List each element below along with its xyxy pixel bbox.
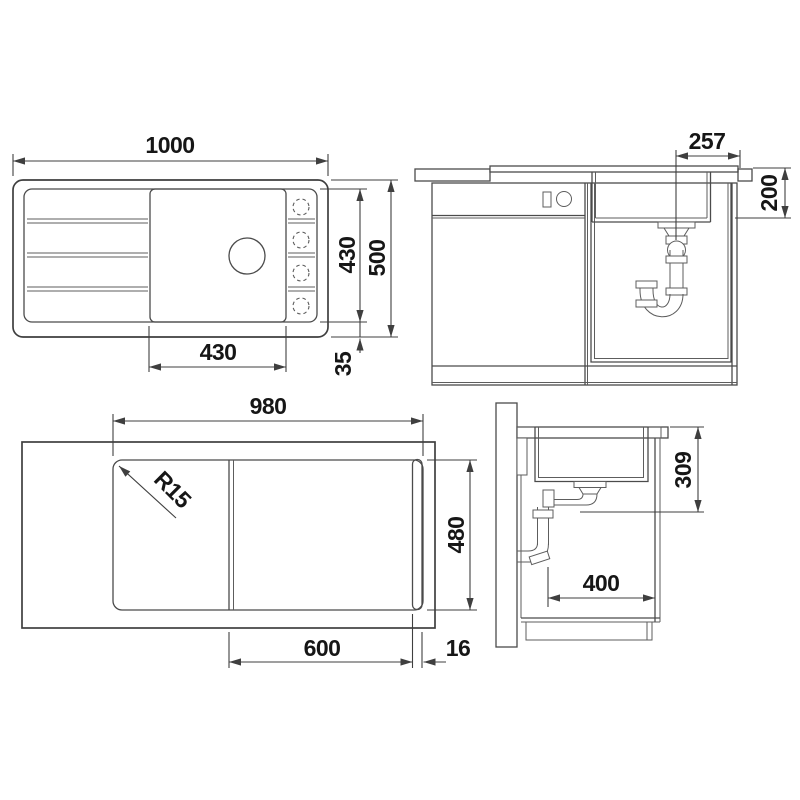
dim-bowl-depth: 200	[735, 168, 791, 218]
dim-label-overall-width: 1000	[145, 132, 194, 158]
dim-strip-width: 16	[424, 635, 471, 662]
bowl-section-front	[592, 172, 711, 222]
sink-outline	[13, 180, 328, 337]
dim-label-drain-to-right-edge: 257	[689, 128, 726, 154]
waste-trap-front	[636, 222, 695, 317]
dim-label-clearance-width: 400	[583, 570, 620, 596]
countertop-side	[517, 427, 668, 438]
wall-hatch	[496, 403, 517, 647]
dim-label-cutout-width: 980	[250, 393, 287, 419]
appliance-knob-circle	[557, 192, 572, 207]
countertop-right-hatch	[738, 169, 752, 181]
plinth	[526, 622, 652, 640]
appliance-button-rect	[543, 192, 551, 207]
dim-label-strip-width: 16	[446, 635, 471, 661]
dim-label-cutout-height: 480	[443, 517, 469, 554]
dim-label-bowl-section-width: 600	[304, 635, 341, 661]
dim-label-overall-height: 500	[364, 240, 390, 277]
countertop-left-hatch	[415, 169, 490, 181]
dim-clearance-width: 400	[548, 567, 655, 607]
front-section-view: 257 200	[415, 128, 791, 385]
cutout-plan-view: R15 980 480 600 16	[22, 393, 477, 668]
sink-dimension-drawing: 1000 430 500 430 35	[0, 0, 800, 800]
dim-label-bowl-depth: 200	[756, 175, 782, 212]
sink-cabinet-inner-wall-inner	[595, 183, 729, 359]
sink-rim-profile	[490, 166, 738, 172]
dim-label-edge-margin: 35	[330, 351, 356, 376]
cabinet-side	[521, 438, 660, 640]
plan-view: 1000 430 500 430 35	[13, 132, 398, 376]
side-section-view: 309 400	[496, 403, 704, 647]
dim-label-installation-depth: 309	[670, 452, 696, 489]
base-cabinet-front	[432, 183, 737, 385]
dim-label-bowl-width: 430	[200, 339, 237, 365]
dim-label-basin-zone-height: 430	[334, 237, 360, 274]
back-rail	[517, 438, 527, 475]
dim-overall-width: 1000	[13, 132, 328, 176]
dim-installation-depth: 309	[580, 427, 704, 512]
waste-trap-side	[517, 482, 606, 565]
technical-drawing-page: 1000 430 500 430 35	[0, 0, 800, 800]
dim-edge-margin: 35	[330, 322, 360, 376]
